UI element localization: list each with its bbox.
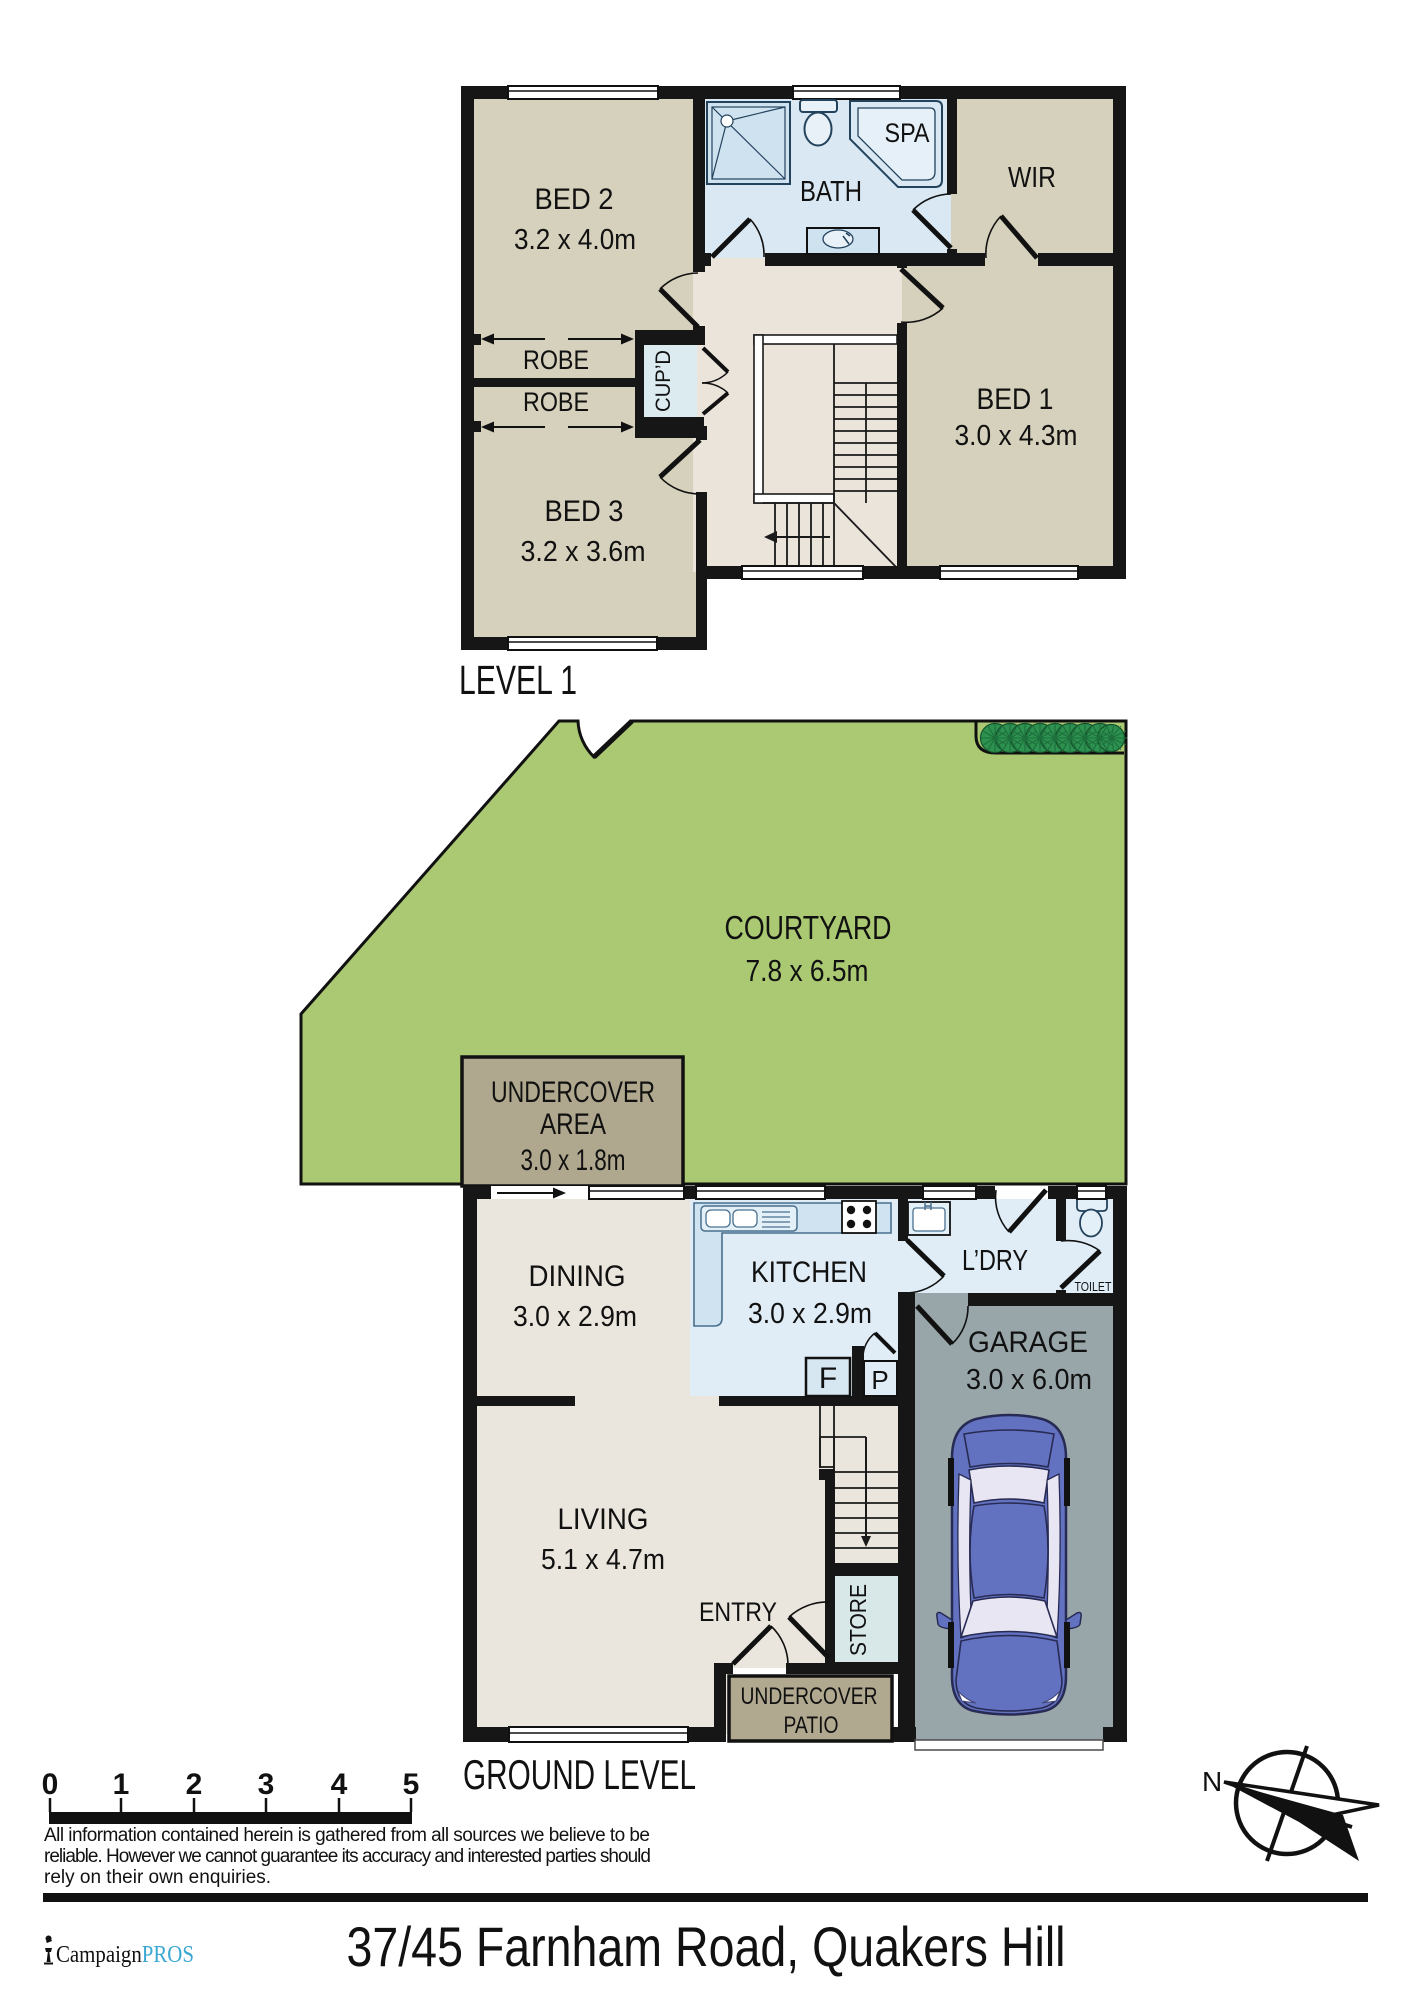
svg-text:UNDERCOVER: UNDERCOVER xyxy=(491,1076,655,1109)
svg-text:All information contained here: All information contained herein is gath… xyxy=(44,1825,650,1846)
svg-text:3.0 x 2.9m: 3.0 x 2.9m xyxy=(748,1298,872,1330)
svg-text:3.2 x 4.0m: 3.2 x 4.0m xyxy=(514,224,636,256)
svg-text:N: N xyxy=(1202,1766,1222,1797)
svg-text:TOILET: TOILET xyxy=(1075,1279,1112,1294)
svg-text:LIVING: LIVING xyxy=(558,1503,649,1536)
svg-text:ROBE: ROBE xyxy=(523,387,589,417)
svg-text:ENTRY: ENTRY xyxy=(699,1597,777,1627)
svg-text:7.8 x 6.5m: 7.8 x 6.5m xyxy=(746,953,869,988)
svg-text:UNDERCOVER: UNDERCOVER xyxy=(741,1683,878,1710)
svg-text:KITCHEN: KITCHEN xyxy=(751,1256,867,1289)
svg-text:4: 4 xyxy=(331,1768,348,1801)
svg-text:BED 1: BED 1 xyxy=(977,383,1054,416)
svg-text:3: 3 xyxy=(258,1768,275,1801)
svg-text:WIR: WIR xyxy=(1008,162,1056,194)
svg-text:3.0 x 6.0m: 3.0 x 6.0m xyxy=(966,1364,1092,1396)
svg-text:L’DRY: L’DRY xyxy=(962,1245,1028,1277)
svg-text:P: P xyxy=(871,1365,888,1395)
svg-text:CampaignPROS: CampaignPROS xyxy=(56,1941,194,1968)
svg-text:37/45 Farnham Road, Quakers Hi: 37/45 Farnham Road, Quakers Hill xyxy=(347,1915,1066,1978)
svg-text:AREA: AREA xyxy=(540,1108,606,1141)
svg-text:PATIO: PATIO xyxy=(784,1712,839,1739)
svg-text:SPA: SPA xyxy=(885,118,930,148)
svg-text:CUP’D: CUP’D xyxy=(652,350,675,412)
svg-text:GROUND LEVEL: GROUND LEVEL xyxy=(463,1751,696,1798)
svg-text:5: 5 xyxy=(403,1768,420,1801)
svg-text:COURTYARD: COURTYARD xyxy=(725,909,892,946)
svg-text:F: F xyxy=(819,1362,837,1395)
svg-text:ROBE: ROBE xyxy=(523,345,589,375)
svg-text:3.2 x 3.6m: 3.2 x 3.6m xyxy=(521,536,646,568)
svg-text:LEVEL 1: LEVEL 1 xyxy=(459,657,577,703)
svg-text:3.0 x 1.8m: 3.0 x 1.8m xyxy=(521,1144,626,1177)
svg-text:BED 2: BED 2 xyxy=(535,183,614,216)
svg-text:3.0 x 4.3m: 3.0 x 4.3m xyxy=(955,420,1078,452)
svg-text:3.0 x 2.9m: 3.0 x 2.9m xyxy=(513,1301,637,1333)
svg-text:2: 2 xyxy=(186,1768,203,1801)
svg-text:reliable. However we cannot gu: reliable. However we cannot guarantee it… xyxy=(44,1846,651,1867)
svg-text:BED 3: BED 3 xyxy=(545,495,624,528)
svg-text:5.1 x 4.7m: 5.1 x 4.7m xyxy=(541,1544,665,1576)
svg-text:1: 1 xyxy=(113,1768,130,1801)
svg-text:GARAGE: GARAGE xyxy=(968,1326,1088,1359)
svg-text:BATH: BATH xyxy=(800,176,862,208)
svg-text:STORE: STORE xyxy=(845,1584,871,1656)
svg-text:0: 0 xyxy=(42,1768,59,1801)
svg-text:DINING: DINING xyxy=(529,1260,626,1293)
svg-text:rely on their own enquiries.: rely on their own enquiries. xyxy=(44,1867,271,1888)
